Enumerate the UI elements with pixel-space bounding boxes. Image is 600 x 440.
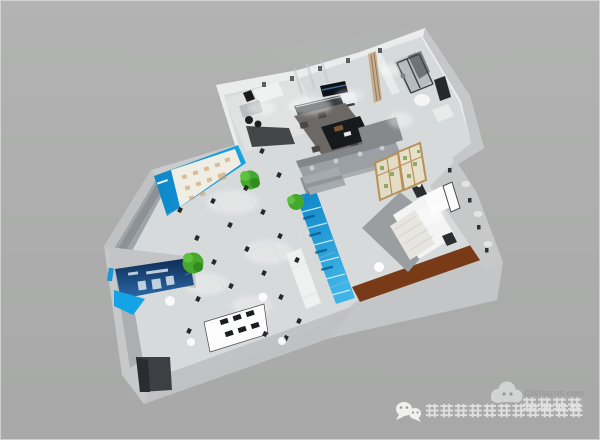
svg-text:Chinazns.com: Chinazns.com [524, 388, 585, 398]
